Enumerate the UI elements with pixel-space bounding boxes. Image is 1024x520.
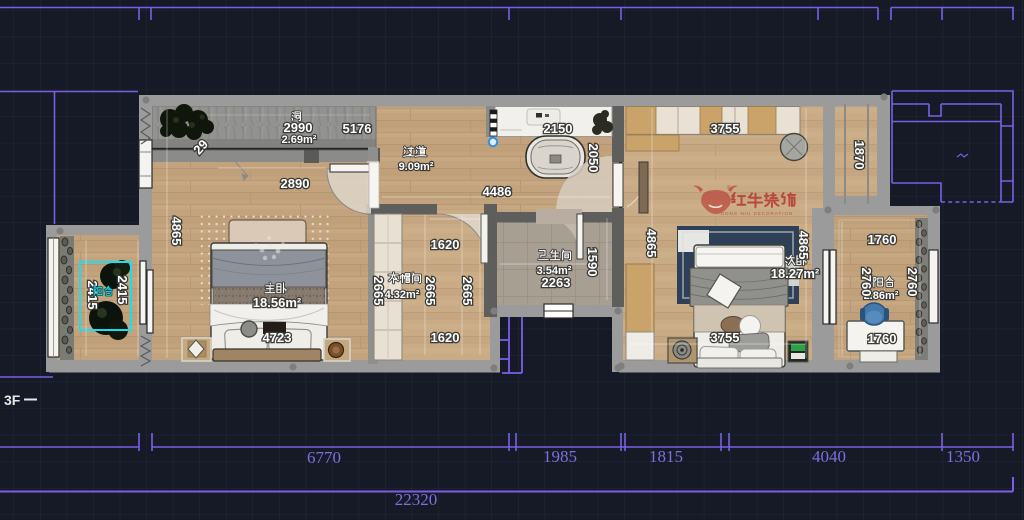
- svg-text:4865: 4865: [796, 231, 811, 260]
- svg-text:2665: 2665: [371, 277, 386, 306]
- svg-text:22320: 22320: [395, 490, 438, 509]
- svg-text:4723: 4723: [263, 330, 292, 345]
- svg-text:18.56m²: 18.56m²: [253, 295, 302, 310]
- svg-text:3F: 3F: [4, 392, 21, 408]
- svg-text:5176: 5176: [343, 121, 372, 136]
- svg-text:6770: 6770: [307, 448, 341, 467]
- svg-text:4865: 4865: [644, 229, 659, 258]
- svg-text:1760: 1760: [868, 232, 897, 247]
- svg-text:1620: 1620: [431, 330, 460, 345]
- svg-text:3755: 3755: [711, 330, 740, 345]
- svg-text:2415: 2415: [115, 276, 130, 305]
- svg-text:2760: 2760: [905, 268, 920, 297]
- svg-text:1985: 1985: [543, 447, 577, 466]
- svg-text:18.27m²: 18.27m²: [771, 266, 820, 281]
- svg-text:1590: 1590: [585, 248, 600, 277]
- svg-text:2760: 2760: [859, 268, 874, 297]
- svg-text:2263: 2263: [542, 275, 571, 290]
- svg-text:9.09m²: 9.09m²: [399, 161, 434, 173]
- svg-text:2890: 2890: [281, 176, 310, 191]
- svg-text:2.69m²: 2.69m²: [282, 134, 317, 146]
- svg-text:2990: 2990: [284, 120, 313, 135]
- svg-text:2665: 2665: [423, 277, 438, 306]
- svg-text:1620: 1620: [431, 237, 460, 252]
- svg-text:®: ®: [727, 185, 732, 192]
- svg-text:1760: 1760: [868, 331, 897, 346]
- svg-text:4486: 4486: [483, 184, 512, 199]
- svg-text:HONG NIU DECORATION: HONG NIU DECORATION: [721, 211, 793, 216]
- svg-text:2050: 2050: [586, 144, 601, 173]
- svg-text:2150: 2150: [544, 121, 573, 136]
- svg-text:4040: 4040: [812, 447, 846, 466]
- svg-text:1870: 1870: [852, 141, 867, 170]
- svg-text:4865: 4865: [169, 217, 184, 246]
- svg-text:4.32m²: 4.32m²: [385, 289, 420, 301]
- svg-text:3755: 3755: [711, 121, 740, 136]
- svg-text:2665: 2665: [460, 277, 475, 306]
- svg-text:1350: 1350: [946, 447, 980, 466]
- svg-text:1815: 1815: [649, 447, 683, 466]
